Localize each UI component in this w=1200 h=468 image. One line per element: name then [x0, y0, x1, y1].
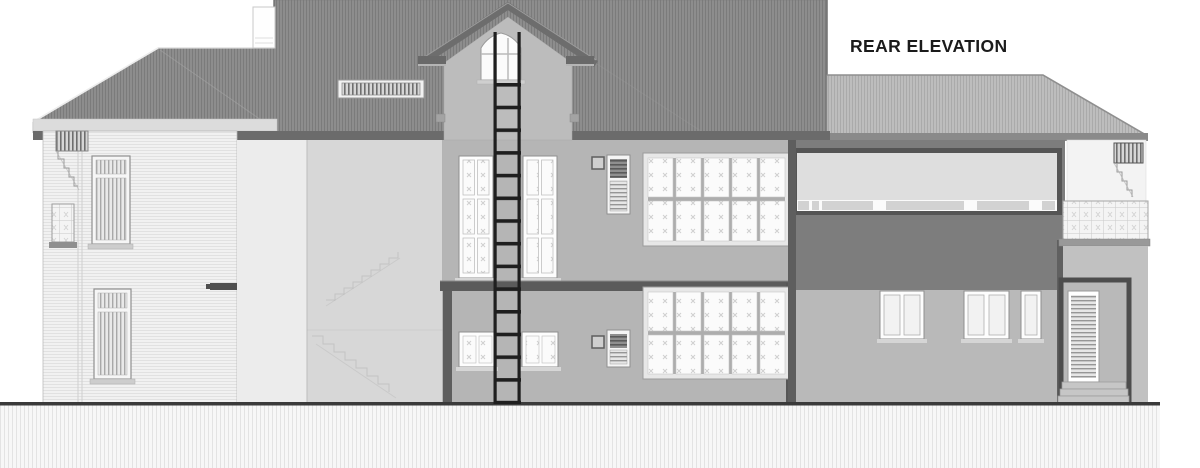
upper-square-vent — [592, 157, 604, 169]
step — [1062, 382, 1126, 389]
pane — [527, 160, 539, 195]
panel — [648, 335, 673, 374]
upper-louver-light — [610, 181, 627, 211]
left-soffit — [33, 119, 277, 131]
stair-door-bay — [1058, 246, 1148, 404]
lower-louver-dark — [610, 334, 627, 348]
transom-pane — [886, 201, 964, 210]
pane — [478, 238, 490, 273]
left-lower-window-sill — [90, 379, 135, 384]
right-window-2-sill — [961, 339, 1012, 343]
pane — [884, 295, 900, 335]
ladder — [494, 32, 522, 404]
left-lower-window-louver — [98, 312, 127, 375]
transom-pane — [977, 201, 1029, 210]
railing-cap — [1059, 239, 1150, 246]
gable-end-louver-vent — [1114, 143, 1143, 163]
elevation-drawing: REAR ELEVATION — [0, 0, 1200, 468]
left-lower-window-transom — [98, 293, 127, 308]
ladder-rail-right — [518, 32, 521, 404]
recessed-wall — [237, 140, 307, 404]
lower-window-left-sill — [456, 367, 498, 371]
pane — [904, 295, 920, 335]
pane — [463, 238, 475, 273]
glass-block-sill — [49, 242, 77, 248]
panel — [648, 158, 673, 197]
panel — [648, 201, 673, 241]
pane — [463, 199, 475, 234]
pane — [542, 199, 554, 234]
upper-louver-dark — [610, 159, 627, 178]
pane — [1025, 295, 1037, 335]
step — [1058, 396, 1129, 403]
left-post — [443, 291, 452, 404]
balcony-railing — [1059, 201, 1150, 246]
panel — [676, 158, 701, 197]
panel — [676, 335, 701, 374]
panel — [732, 201, 757, 241]
eave-return-shadow — [566, 64, 594, 66]
ground-hatch — [0, 405, 1160, 468]
right-gable-end — [1067, 140, 1146, 202]
left-wing — [43, 131, 238, 404]
left-wall-siding — [43, 131, 237, 404]
panel — [704, 201, 729, 241]
stair-door-louver — [1071, 295, 1096, 378]
wall-bracket-notch — [206, 284, 211, 289]
right-lower-wall — [796, 290, 1057, 404]
lower-louver-light — [610, 350, 627, 364]
pane — [968, 295, 984, 335]
panel — [760, 335, 785, 374]
transom-pane — [812, 201, 819, 210]
panel — [676, 292, 701, 331]
pane — [542, 160, 554, 195]
wall-bracket-bar — [210, 283, 238, 290]
pane — [527, 199, 539, 234]
pane — [479, 336, 492, 363]
roof-vent-louver — [342, 83, 420, 95]
left-upper-window-sill — [88, 244, 133, 249]
stair-section — [237, 140, 443, 404]
right-wing-left-column — [788, 140, 796, 404]
gable-eave-return-left — [418, 56, 446, 64]
pane — [526, 336, 539, 363]
rooftop-block — [253, 7, 275, 48]
ground — [0, 402, 1160, 468]
step — [1060, 389, 1128, 396]
panel — [732, 158, 757, 197]
elevation-svg: REAR ELEVATION — [0, 0, 1200, 468]
ribbon-transom-segments — [798, 201, 1055, 210]
stair-wall — [307, 140, 443, 404]
right-window-1-sill — [877, 339, 927, 343]
panel — [648, 292, 673, 331]
right-wing — [788, 140, 1065, 404]
ladder-rungs — [494, 83, 521, 404]
transom-pane — [798, 201, 809, 210]
panel — [732, 292, 757, 331]
eave-return-shadow — [418, 64, 446, 66]
dormer-ledge-left — [436, 114, 445, 122]
panel — [704, 158, 729, 197]
panel — [704, 292, 729, 331]
pane — [478, 160, 490, 195]
pane — [463, 160, 475, 195]
pane — [478, 199, 490, 234]
pane — [527, 238, 539, 273]
panel — [760, 158, 785, 197]
left-upper-window-transom — [96, 160, 126, 174]
panel — [760, 292, 785, 331]
pane — [989, 295, 1005, 335]
pane — [463, 336, 476, 363]
dormer-ledge-right — [570, 114, 579, 122]
pane — [542, 238, 554, 273]
ladder-rail-left — [494, 32, 497, 404]
glass-block-panel — [52, 204, 74, 242]
panel — [676, 201, 701, 241]
ground-line — [0, 402, 1160, 406]
transom-pane — [822, 201, 873, 210]
gable-arch-window — [481, 33, 521, 80]
panel — [760, 201, 785, 241]
panel — [732, 335, 757, 374]
gable-eave-return-right — [566, 56, 594, 64]
panel — [704, 335, 729, 374]
left-upper-window-louver — [96, 178, 126, 240]
transom-pane — [1042, 201, 1055, 210]
pane — [542, 336, 555, 363]
ribbon-window-glazing — [797, 153, 1057, 200]
glass-block-railing — [1063, 201, 1148, 240]
lower-square-vent — [592, 336, 604, 348]
eave-bracket-louver — [56, 131, 88, 151]
right-window-3-sill — [1018, 339, 1044, 343]
drawing-title: REAR ELEVATION — [850, 36, 1008, 56]
lower-window-right-sill — [519, 367, 561, 371]
